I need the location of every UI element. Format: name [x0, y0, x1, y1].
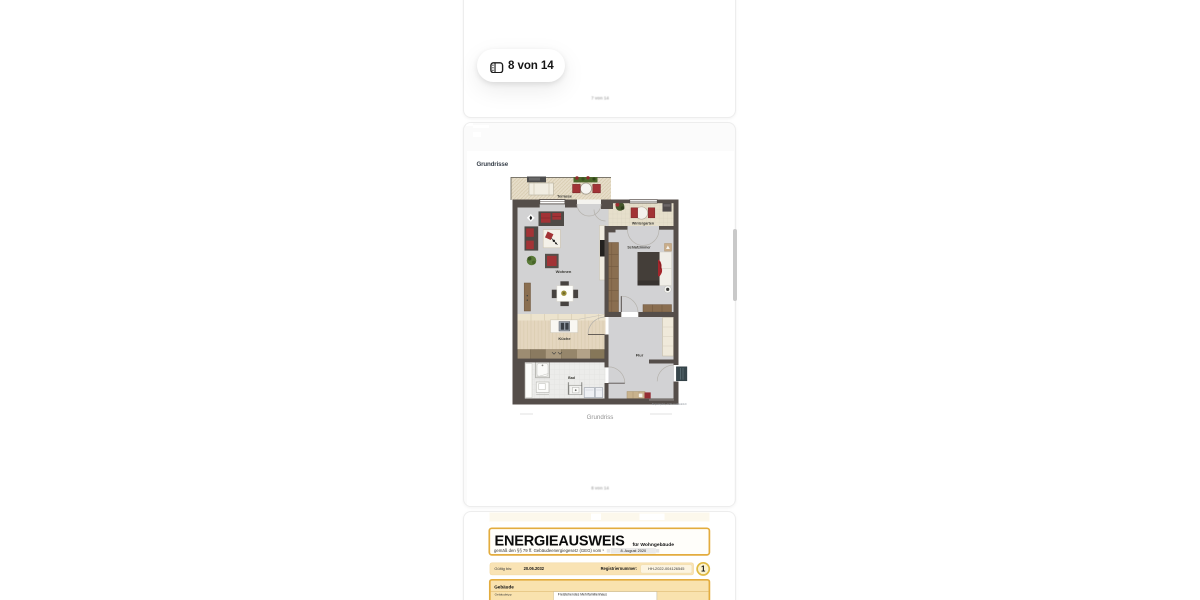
svg-text:Wohnen: Wohnen — [556, 269, 572, 274]
svg-text:Gültig bis:: Gültig bis: — [494, 566, 512, 571]
svg-text:7 von 14: 7 von 14 — [591, 96, 609, 101]
svg-text:Wintergarten: Wintergarten — [632, 221, 654, 225]
svg-text:Flur: Flur — [636, 352, 644, 357]
svg-text:8 von 14: 8 von 14 — [591, 486, 609, 491]
svg-text:Exposeplan, nicht maßstäblich: Exposeplan, nicht maßstäblich — [652, 402, 688, 406]
svg-text:Gebäude: Gebäude — [494, 585, 514, 590]
svg-text:Küche: Küche — [558, 336, 571, 341]
svg-text:Bad: Bad — [568, 376, 575, 380]
svg-text:1: 1 — [701, 565, 706, 574]
svg-text:Gebäudetyp: Gebäudetyp — [495, 592, 512, 596]
svg-text:Freistehendes Mehrfamilienhaus: Freistehendes Mehrfamilienhaus — [558, 593, 607, 597]
svg-text:20.06.2032: 20.06.2032 — [524, 566, 545, 571]
svg-text:Terrasse: Terrasse — [557, 194, 572, 198]
svg-text:gemäß den §§ 79 ff. Gebäudeene: gemäß den §§ 79 ff. Gebäudeenergiegesetz… — [494, 548, 604, 553]
svg-text:für Wohngebäude: für Wohngebäude — [633, 542, 675, 548]
svg-text:Registriernummer:: Registriernummer: — [601, 566, 638, 571]
svg-text:Schlafzimmer: Schlafzimmer — [627, 246, 651, 250]
svg-text:HH-2022-004126545: HH-2022-004126545 — [648, 566, 684, 571]
svg-text:8. August 2020: 8. August 2020 — [620, 549, 646, 553]
